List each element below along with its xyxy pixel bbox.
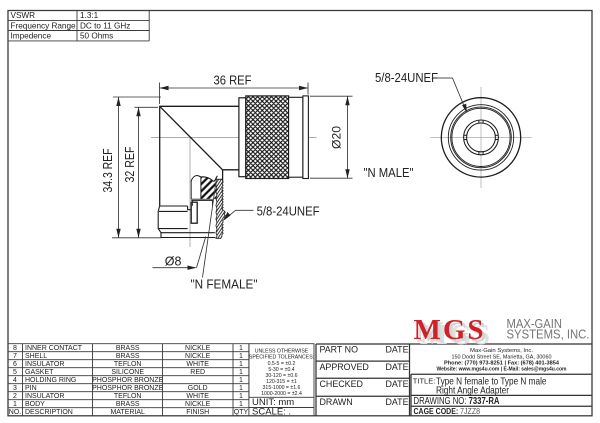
svg-text:APPROVED: APPROVED xyxy=(320,362,369,372)
svg-text:NICKLE: NICKLE xyxy=(185,345,211,352)
svg-text:1: 1 xyxy=(239,401,243,408)
svg-text:8: 8 xyxy=(13,345,17,352)
svg-text:5/8-24UNEF: 5/8-24UNEF xyxy=(375,71,438,85)
svg-text:3: 3 xyxy=(13,385,17,392)
svg-text:INNER CONTACT: INNER CONTACT xyxy=(25,345,83,352)
svg-text:DATE: DATE xyxy=(386,345,409,355)
svg-text:PIN: PIN xyxy=(25,385,37,392)
svg-text:SYSTEMS, INC.: SYSTEMS, INC. xyxy=(507,328,590,342)
svg-text:1: 1 xyxy=(239,369,243,376)
svg-text:1: 1 xyxy=(239,377,243,384)
svg-text:50 Ohms: 50 Ohms xyxy=(80,32,113,41)
svg-text:SPECIFIED TOLERANCES:: SPECIFIED TOLERANCES: xyxy=(249,355,314,361)
svg-text:DC to 11 GHz: DC to 11 GHz xyxy=(80,21,130,30)
svg-text:1: 1 xyxy=(239,361,243,368)
svg-text:DRAWN: DRAWN xyxy=(320,397,353,407)
svg-text:150 Dodd Street SE, Marietta,: 150 Dodd Street SE, Marietta, GA, 30060 xyxy=(452,354,552,360)
svg-text:34.3 REF: 34.3 REF xyxy=(101,148,115,192)
svg-text:6: 6 xyxy=(13,361,17,368)
svg-text:1: 1 xyxy=(239,393,243,400)
svg-text:SHELL: SHELL xyxy=(25,353,47,360)
svg-text:Right Angle Adapter: Right Angle Adapter xyxy=(436,385,509,397)
svg-text:INSULATOR: INSULATOR xyxy=(25,361,64,368)
svg-text:5/8-24UNEF: 5/8-24UNEF xyxy=(257,204,320,218)
svg-text:RED: RED xyxy=(190,369,205,376)
svg-text:WHITE: WHITE xyxy=(186,361,209,368)
svg-text:BRASS: BRASS xyxy=(116,353,140,360)
svg-text:1: 1 xyxy=(13,401,17,408)
svg-text:GASKET: GASKET xyxy=(25,369,54,376)
svg-text:TEFLON: TEFLON xyxy=(114,393,142,400)
svg-text:VSWR: VSWR xyxy=(11,11,36,20)
svg-text:Website: www.mgs4u.com | E-Mai: Website: www.mgs4u.com | E-Mail: sales@m… xyxy=(437,367,567,373)
svg-text:MATERIAL: MATERIAL xyxy=(110,409,145,416)
svg-text:GOLD: GOLD xyxy=(188,385,208,392)
svg-text:QTY: QTY xyxy=(234,409,249,416)
svg-text:PHOSPHOR BRONZE: PHOSPHOR BRONZE xyxy=(92,377,164,384)
svg-text:BRASS: BRASS xyxy=(116,345,140,352)
svg-text:DATE: DATE xyxy=(386,397,409,407)
svg-text:32 REF: 32 REF xyxy=(123,146,137,182)
svg-text:"N FEMALE": "N FEMALE" xyxy=(191,277,258,292)
svg-text:5: 5 xyxy=(13,369,17,376)
svg-text:4: 4 xyxy=(13,377,17,384)
svg-text:2: 2 xyxy=(13,393,17,400)
svg-text:NICKLE: NICKLE xyxy=(185,401,211,408)
svg-text:FINISH: FINISH xyxy=(186,409,209,416)
svg-text:NICKLE: NICKLE xyxy=(185,353,211,360)
svg-text:36 REF: 36 REF xyxy=(214,74,252,88)
svg-text:7: 7 xyxy=(13,353,17,360)
svg-text:Ø8: Ø8 xyxy=(165,255,182,269)
svg-text:NO.: NO. xyxy=(9,409,22,416)
svg-text:SCALE: .: SCALE: . xyxy=(252,407,291,418)
svg-text:PHOSPHOR BRONZE: PHOSPHOR BRONZE xyxy=(92,385,164,392)
svg-text:Max-Gain Systems, Inc.: Max-Gain Systems, Inc. xyxy=(470,348,533,354)
svg-text:Frequency Range: Frequency Range xyxy=(11,21,77,30)
svg-text:1.3:1: 1.3:1 xyxy=(80,11,99,20)
svg-text:CAGE CODE: 7JZZ8: CAGE CODE: 7JZZ8 xyxy=(414,406,481,416)
svg-text:BRASS: BRASS xyxy=(116,401,140,408)
svg-text:DATE: DATE xyxy=(386,379,409,389)
svg-text:Impedence: Impedence xyxy=(11,32,52,41)
svg-text:SILICONE: SILICONE xyxy=(111,369,144,376)
svg-text:Ø20: Ø20 xyxy=(330,126,344,149)
svg-text:1: 1 xyxy=(239,385,243,392)
svg-text:1: 1 xyxy=(239,345,243,352)
svg-text:1: 1 xyxy=(239,353,243,360)
svg-text:TITLE:: TITLE: xyxy=(413,377,436,386)
svg-text:DATE: DATE xyxy=(386,362,409,372)
svg-text:PART NO: PART NO xyxy=(320,345,359,355)
svg-text:WHITE: WHITE xyxy=(186,393,209,400)
svg-text:HOLDING RING: HOLDING RING xyxy=(25,377,76,384)
svg-text:CHECKED: CHECKED xyxy=(320,379,363,389)
svg-text:BODY: BODY xyxy=(25,401,45,408)
svg-text:TEFLON: TEFLON xyxy=(114,361,142,368)
svg-text:MGS: MGS xyxy=(414,314,486,346)
svg-text:Phone: (770) 973-8251 | Fax: (: Phone: (770) 973-8251 | Fax: (678) 401-3… xyxy=(444,361,559,367)
svg-text:DESCRIPTION: DESCRIPTION xyxy=(25,409,73,416)
svg-text:INSULATOR: INSULATOR xyxy=(25,393,64,400)
svg-text:"N MALE": "N MALE" xyxy=(364,165,414,180)
